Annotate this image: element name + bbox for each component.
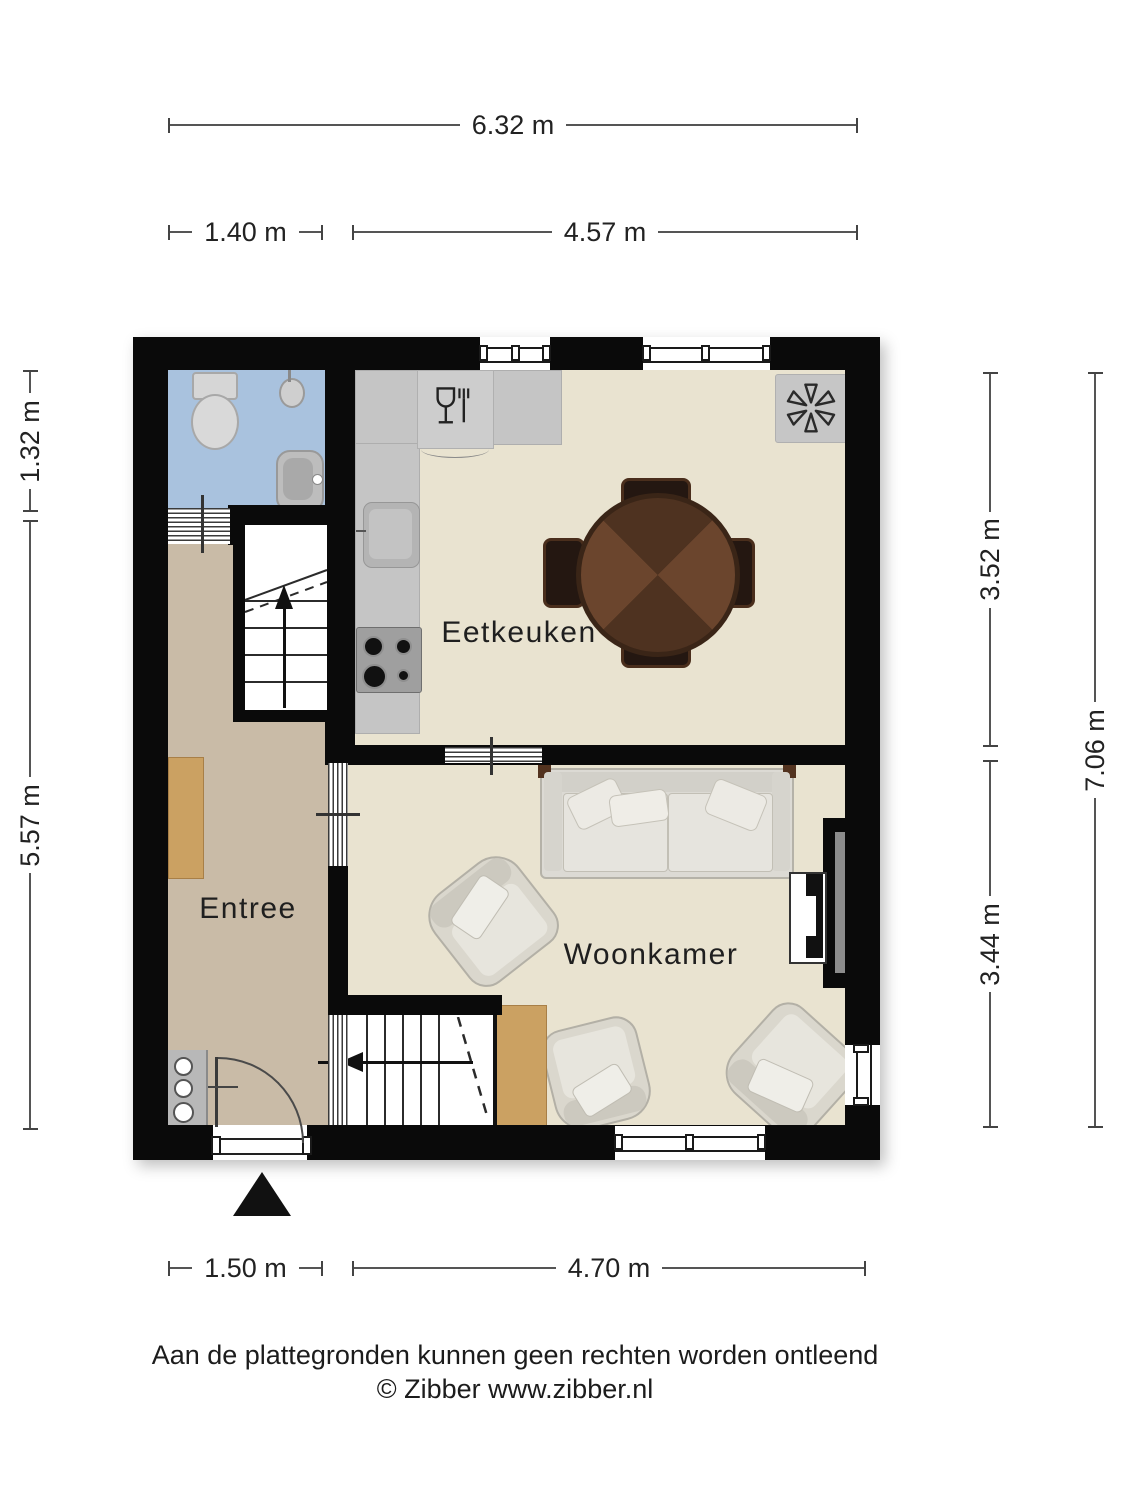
kitchen-living-door bbox=[445, 747, 542, 763]
floorplan-page: 6.32 m 1.40 m 4.57 m 1.32 m 5.57 m 3.52 … bbox=[0, 0, 1125, 1500]
sofa-armrest bbox=[772, 772, 790, 871]
stairwell-door bbox=[328, 1015, 348, 1125]
stairs-down-cutline bbox=[452, 1017, 492, 1123]
dim-line bbox=[658, 231, 856, 233]
room-label-woonkamer: Woonkamer bbox=[551, 938, 751, 972]
dimension-label: 1.50 m bbox=[192, 1253, 299, 1284]
stair-tread bbox=[245, 681, 327, 683]
sofa-armrest bbox=[544, 772, 562, 871]
tv-bracket-notch bbox=[806, 896, 816, 936]
bathroom-door-tick bbox=[201, 495, 204, 553]
wall-stairwell-top bbox=[328, 995, 502, 1015]
window-post bbox=[853, 1097, 869, 1106]
livingroom-window-right bbox=[845, 1045, 880, 1105]
stove-burner bbox=[363, 636, 384, 657]
dim-line bbox=[354, 1267, 556, 1269]
dimension-right-upper: 3.52 m bbox=[976, 372, 1004, 747]
window-post bbox=[614, 1134, 623, 1150]
dim-tick bbox=[856, 225, 858, 240]
stair-tread bbox=[420, 1015, 422, 1125]
stairs-up-arrow-shaft bbox=[283, 608, 286, 708]
entree-cabinet bbox=[168, 757, 204, 879]
dim-line bbox=[29, 873, 31, 1128]
dimension-bottom-right: 4.70 m bbox=[352, 1254, 866, 1282]
dimension-label: 3.44 m bbox=[949, 896, 1032, 992]
dim-line bbox=[170, 1267, 192, 1269]
dim-line bbox=[299, 231, 321, 233]
stairs-down-arrow-shaft bbox=[358, 1061, 473, 1064]
dimension-left-lower: 5.57 m bbox=[16, 520, 44, 1130]
dim-line bbox=[170, 124, 460, 126]
toilet-bowl bbox=[191, 394, 239, 450]
dishwasher bbox=[417, 370, 494, 449]
dimension-top-total: 6.32 m bbox=[168, 111, 858, 139]
stairs-cabinet bbox=[496, 1005, 547, 1127]
entrance-arrow-icon bbox=[233, 1172, 291, 1216]
window-post bbox=[762, 345, 771, 361]
dim-line bbox=[29, 489, 31, 510]
dimension-top-right: 4.57 m bbox=[352, 218, 858, 246]
stove-burner bbox=[397, 669, 410, 682]
footer-disclaimer: Aan de plattegronden kunnen geen rechten… bbox=[0, 1338, 1030, 1372]
ventilation-fan-icon bbox=[782, 380, 840, 436]
meter-cupboard bbox=[168, 1050, 208, 1125]
window-post bbox=[757, 1134, 766, 1150]
dim-line bbox=[29, 372, 31, 393]
dim-line bbox=[170, 231, 192, 233]
dimension-label: 3.52 m bbox=[949, 512, 1032, 608]
kitchen-window-small bbox=[480, 337, 550, 370]
stove-burner bbox=[362, 664, 387, 689]
sink-faucet bbox=[356, 530, 366, 532]
dim-tick bbox=[321, 1261, 323, 1276]
sofa bbox=[540, 768, 794, 879]
dim-line bbox=[1094, 374, 1096, 702]
livingroom-window-bottom bbox=[615, 1126, 765, 1160]
fountain-sink bbox=[279, 378, 305, 408]
footer: Aan de plattegronden kunnen geen rechten… bbox=[0, 1338, 1030, 1406]
kitchen-window-large bbox=[643, 337, 770, 370]
dishwasher-icon bbox=[430, 383, 478, 431]
dimension-label: 4.70 m bbox=[556, 1253, 663, 1284]
dim-line bbox=[989, 374, 991, 512]
stair-tread bbox=[245, 654, 327, 656]
room-label-eetkeuken: Eetkeuken bbox=[419, 616, 619, 650]
stair-tread bbox=[245, 627, 327, 629]
wall-left bbox=[133, 337, 168, 1160]
dim-tick bbox=[856, 118, 858, 133]
dimension-label: 5.57 m bbox=[0, 777, 71, 873]
dishwasher-door-arc bbox=[421, 441, 489, 458]
bathroom-door bbox=[168, 508, 230, 544]
window-post bbox=[853, 1044, 869, 1053]
dim-line bbox=[566, 124, 856, 126]
dim-line bbox=[989, 992, 991, 1126]
window-post bbox=[701, 345, 710, 361]
meter-dial bbox=[174, 1057, 193, 1076]
stair-tread bbox=[438, 1015, 440, 1125]
stair-tread bbox=[366, 1015, 368, 1125]
window-glass bbox=[856, 1045, 872, 1105]
window-post bbox=[685, 1134, 694, 1150]
kitchen-living-door-tick bbox=[490, 737, 493, 775]
kitchen-sink-basin bbox=[369, 509, 412, 559]
dimension-label: 6.32 m bbox=[460, 110, 567, 141]
dim-tick bbox=[23, 1128, 38, 1130]
fountain-tap bbox=[288, 370, 291, 382]
dim-tick bbox=[864, 1261, 866, 1276]
dimension-top-left: 1.40 m bbox=[168, 218, 323, 246]
dimension-left-upper: 1.32 m bbox=[16, 370, 44, 512]
dimension-label: 1.40 m bbox=[192, 217, 299, 248]
stairs-up-arrow-icon bbox=[275, 585, 293, 609]
dim-line bbox=[989, 762, 991, 896]
stair-tread bbox=[402, 1015, 404, 1125]
washbasin-faucet bbox=[312, 474, 323, 485]
entree-living-door-tick bbox=[316, 813, 360, 816]
dim-tick bbox=[321, 225, 323, 240]
dim-tick bbox=[1088, 1126, 1103, 1128]
dimension-bottom-left: 1.50 m bbox=[168, 1254, 323, 1282]
dim-line bbox=[989, 608, 991, 746]
stove bbox=[356, 627, 422, 693]
meter-cupboard-door-line bbox=[208, 1086, 238, 1088]
dimension-right-lower: 3.44 m bbox=[976, 760, 1004, 1128]
dimension-label: 4.57 m bbox=[552, 217, 659, 248]
room-label-entree: Entree bbox=[178, 892, 318, 926]
window-post bbox=[542, 345, 551, 361]
window-post bbox=[642, 345, 651, 361]
dimension-label: 7.06 m bbox=[1054, 702, 1125, 798]
stove-burner bbox=[395, 638, 412, 655]
dim-line bbox=[299, 1267, 321, 1269]
stair-tread bbox=[384, 1015, 386, 1125]
meter-dial bbox=[173, 1102, 194, 1123]
dim-line bbox=[662, 1267, 864, 1269]
dimension-label: 1.32 m bbox=[0, 393, 71, 489]
window-post bbox=[479, 345, 488, 361]
wall-right bbox=[845, 337, 880, 1160]
window-post bbox=[511, 345, 520, 361]
wall-kitchen-living bbox=[325, 745, 845, 765]
footer-credit: © Zibber www.zibber.nl bbox=[0, 1372, 1030, 1406]
dim-tick bbox=[983, 1126, 998, 1128]
meter-dial bbox=[174, 1079, 193, 1098]
dim-line bbox=[354, 231, 552, 233]
washbasin-bowl bbox=[283, 458, 313, 500]
dimension-right-total: 7.06 m bbox=[1081, 372, 1109, 1128]
dim-tick bbox=[23, 510, 38, 512]
dim-tick bbox=[983, 745, 998, 747]
dim-line bbox=[29, 522, 31, 777]
dim-line bbox=[1094, 798, 1096, 1126]
ventilation-unit bbox=[775, 374, 849, 443]
